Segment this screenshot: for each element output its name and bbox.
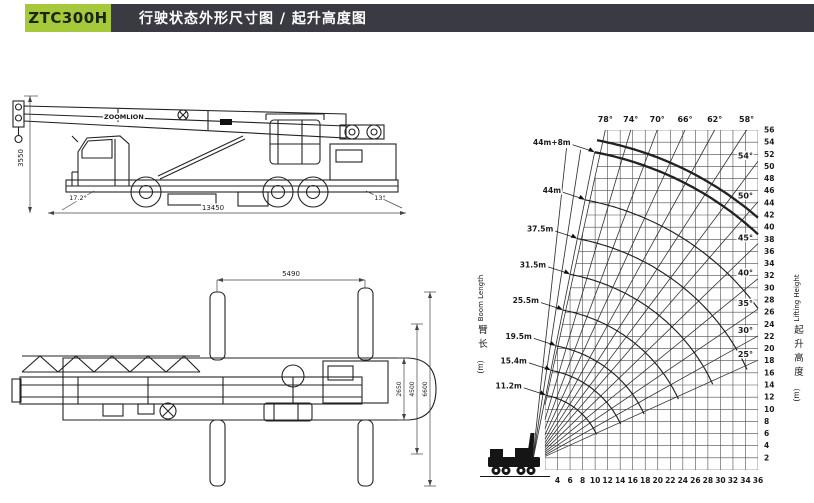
chart-x-tick: 14 [615, 476, 625, 485]
chart-y-tick: 42 [764, 211, 774, 220]
chart-y-tick: 14 [764, 381, 774, 390]
boom-length-labels: 11.2m15.4m19.5m25.5m31.5m37.5m44m44m+8m [496, 138, 595, 395]
left-axis-title-unit: (m) [476, 360, 485, 373]
boom-angle-label: 25° [738, 350, 753, 359]
rear-departure-angle: 13° [374, 194, 386, 202]
side-view-drawing: ZOOMLION 3550 13450 17.2° 13° [8, 88, 448, 236]
chart-y-tick: 38 [764, 235, 774, 244]
right-axis-title-zh: 升 [794, 339, 804, 350]
boom-angle-label: 78° [598, 115, 613, 124]
boom-angle-label: 45° [738, 234, 753, 243]
boom-length-label: 19.5m [505, 332, 532, 341]
right-axis-title-en: Lifting Height [793, 274, 801, 321]
chart-x-tick: 32 [728, 476, 738, 485]
chart-y-tick: 50 [764, 162, 774, 171]
chart-y-tick: 22 [764, 332, 774, 341]
side-length-dim: 13450 [202, 204, 224, 212]
chart-y-tick: 6 [764, 429, 769, 438]
right-axis-title-zh: 高 [794, 352, 804, 364]
left-axis-title: Boom Length臂长(m) [476, 275, 488, 374]
boom-angle-label: 74° [623, 115, 638, 124]
chart-y-tick: 30 [764, 283, 774, 292]
chart-y-tick: 8 [764, 417, 769, 426]
chart-y-tick: 18 [764, 356, 774, 365]
chart-y-tick: 56 [764, 126, 774, 135]
boom-angle-label: 54° [738, 151, 753, 160]
outrigger-long-dim: 5490 [282, 270, 300, 278]
chart-y-tick: 16 [764, 368, 774, 377]
boom-length-label: 44m [543, 186, 561, 195]
boom-length-label: 44m+8m [533, 138, 571, 147]
side-height-dim: 3550 [17, 149, 25, 167]
boom-arc-31.5m [570, 274, 713, 384]
chart-x-tick: 10 [590, 476, 600, 485]
boom-length-label: 11.2m [496, 381, 523, 390]
title-bar: 行驶状态外形尺寸图 / 起升高度图 [111, 4, 814, 32]
boom-angle-label: 70° [650, 115, 665, 124]
model-badge: ZTC300H [25, 4, 111, 32]
span-mid-dim: 4500 [409, 381, 416, 396]
chart-y-tick: 48 [764, 174, 774, 183]
boom-length-label: 31.5m [520, 260, 547, 269]
chart-y-tick: 28 [764, 296, 774, 305]
datasheet-page: ZTC300H 行驶状态外形尺寸图 / 起升高度图 [0, 0, 814, 503]
boom-angle-label: 30° [738, 326, 753, 335]
top-view-drawing: 5490 2650 4500 6600 [8, 258, 470, 503]
top-view-dimensions [217, 278, 436, 486]
chart-y-tick: 52 [764, 150, 774, 159]
page-title: 行驶状态外形尺寸图 / 起升高度图 [111, 8, 367, 28]
chart-x-tick: 20 [653, 476, 663, 485]
front-approach-angle: 17.2° [69, 194, 87, 202]
span-inner-dim: 2650 [396, 381, 403, 396]
right-axis-title-zh: 度 [794, 366, 804, 378]
chart-y-tick: 12 [764, 393, 774, 402]
boom-brand-text: ZOOMLION [104, 113, 144, 121]
chart-y-tick: 32 [764, 271, 774, 280]
chart-y-tick: 10 [764, 405, 774, 414]
side-view-crane [13, 101, 398, 207]
span-outer-dim: 6600 [422, 381, 429, 396]
chart-x-tick: 26 [690, 476, 700, 485]
top-view-crane [12, 288, 436, 486]
chart-x-tick: 16 [627, 476, 637, 485]
boom-length-label: 15.4m [501, 356, 528, 365]
chart-x-tick: 22 [665, 476, 675, 485]
zoomlion-logo [220, 119, 232, 125]
chart-x-tick: 30 [715, 476, 725, 485]
left-axis-title-zh: 臂 [478, 324, 488, 336]
boom-angle-label: 35° [738, 299, 753, 308]
right-axis-title-unit: (m) [792, 388, 801, 401]
chart-y-tick: 20 [764, 344, 774, 353]
chart-x-tick: 8 [580, 476, 585, 485]
chart-x-tick: 36 [753, 476, 763, 485]
chart-x-tick: 24 [678, 476, 688, 485]
boom-arc-44m [585, 200, 758, 309]
right-axis-title-zh: 起 [794, 325, 804, 336]
boom-length-label: 25.5m [513, 296, 540, 305]
chart-x-tick: 28 [703, 476, 713, 485]
boom-length-label: 37.5m [527, 225, 554, 234]
chart-x-tick: 12 [602, 476, 612, 485]
chart-y-tick: 26 [764, 308, 774, 317]
boom-arc-37.5m [577, 239, 747, 370]
boom-angle-label: 40° [738, 269, 753, 278]
boom-length-arcs [546, 140, 758, 434]
chart-x-tick: 18 [640, 476, 650, 485]
left-axis-title-en: Boom Length [477, 275, 485, 322]
boom-angle-label: 62° [707, 115, 722, 124]
chart-y-tick: 54 [764, 138, 774, 147]
chart-y-tick: 34 [764, 259, 774, 268]
chart-y-tick: 24 [764, 320, 774, 329]
chart-y-tick: 2 [764, 453, 769, 462]
boom-angle-lines [545, 130, 758, 456]
boom-arc-25.5m [563, 310, 678, 399]
boom-angle-label: 66° [677, 115, 692, 124]
mini-crane-silhouette [480, 433, 550, 477]
chart-y-tick: 40 [764, 223, 774, 232]
chart-x-tick: 34 [740, 476, 750, 485]
right-axis-title: Lifting Height起升高度(m) [792, 274, 804, 401]
chart-y-tick: 36 [764, 247, 774, 256]
chart-x-tick: 6 [567, 476, 572, 485]
chart-y-tick: 44 [764, 198, 774, 207]
chart-y-tick: 46 [764, 186, 774, 195]
boom-angle-label: 58° [739, 115, 754, 124]
left-axis-title-zh: 长 [478, 338, 488, 350]
boom-fan [532, 148, 594, 462]
chart-y-tick: 4 [764, 441, 769, 450]
chart-x-tick: 4 [555, 476, 560, 485]
lifting-height-chart: 11.2m15.4m19.5m25.5m31.5m37.5m44m44m+8m7… [470, 95, 814, 503]
boom-angle-label: 50° [738, 192, 753, 201]
